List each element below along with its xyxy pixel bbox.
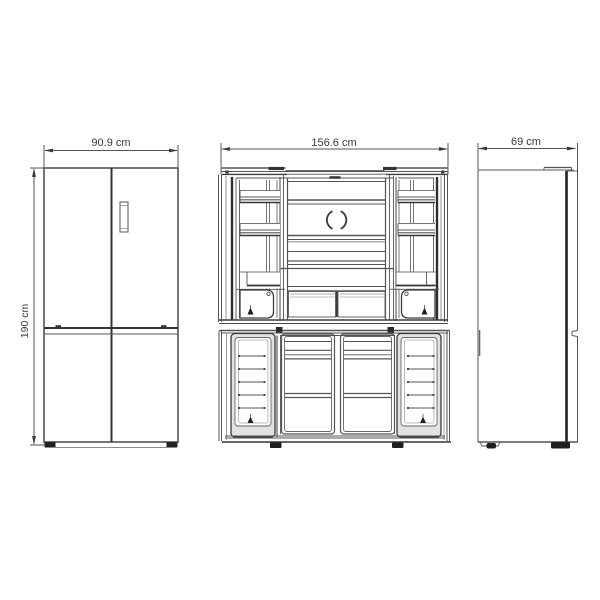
svg-text:90.9 cm: 90.9 cm [91, 137, 130, 149]
svg-text:69 cm: 69 cm [511, 136, 541, 148]
svg-text:190 cm: 190 cm [19, 304, 31, 339]
svg-text:156.6 cm: 156.6 cm [311, 137, 356, 149]
